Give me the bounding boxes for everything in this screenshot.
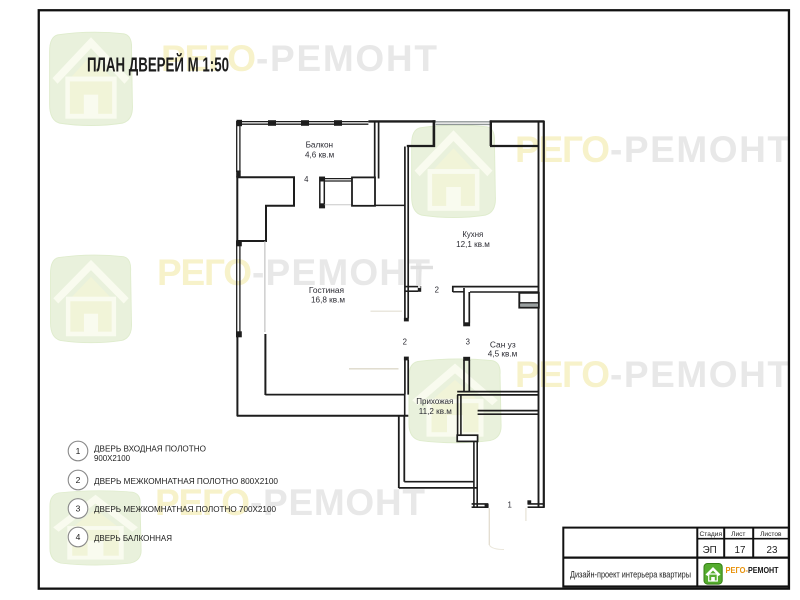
svg-text:2: 2 [76, 475, 81, 485]
svg-text:4,5 кв.м: 4,5 кв.м [488, 349, 518, 358]
svg-text:2: 2 [435, 285, 439, 294]
svg-text:ПЛАН ДВЕРЕЙ М 1:50: ПЛАН ДВЕРЕЙ М 1:50 [87, 52, 229, 76]
svg-text:Кухня: Кухня [462, 230, 483, 239]
svg-text:Прихожая: Прихожая [416, 397, 453, 406]
svg-text:2: 2 [403, 337, 407, 346]
svg-text:ДВЕРЬ МЕЖКОМНАТНАЯ ПОЛОТНО 800: ДВЕРЬ МЕЖКОМНАТНАЯ ПОЛОТНО 800Х2100 [94, 476, 278, 486]
svg-text:ДВЕРЬ ВХОДНАЯ ПОЛОТНО: ДВЕРЬ ВХОДНАЯ ПОЛОТНО [94, 443, 206, 453]
svg-text:РЕГО-РЕМОНТ: РЕГО-РЕМОНТ [726, 566, 779, 575]
svg-text:Сан уз: Сан уз [490, 339, 516, 349]
svg-text:Стадия: Стадия [700, 531, 723, 538]
svg-text:РЕГО: РЕГО [515, 129, 610, 170]
svg-text:16,8 кв.м: 16,8 кв.м [311, 295, 345, 304]
svg-text:-РЕМОНТ: -РЕМОНТ [256, 38, 437, 79]
svg-text:Гостиная: Гостиная [309, 285, 344, 295]
svg-text:4,6 кв.м: 4,6 кв.м [305, 151, 334, 160]
svg-text:3: 3 [466, 337, 470, 346]
svg-text:1: 1 [76, 446, 81, 456]
svg-text:РЕГО: РЕГО [157, 252, 252, 293]
svg-text:4: 4 [304, 175, 309, 184]
svg-text:РЕГО: РЕГО [155, 482, 250, 523]
svg-text:РЕГО: РЕГО [515, 354, 610, 395]
svg-text:3: 3 [76, 504, 81, 514]
svg-text:ДВЕРЬ БАЛКОННАЯ: ДВЕРЬ БАЛКОННАЯ [94, 533, 172, 543]
svg-text:Лист: Лист [731, 531, 745, 538]
svg-text:ДВЕРЬ МЕЖКОМНАТНАЯ ПОЛОТНО 700: ДВЕРЬ МЕЖКОМНАТНАЯ ПОЛОТНО 700Х2100 [94, 504, 276, 514]
svg-text:12,1 кв.м: 12,1 кв.м [456, 240, 490, 249]
svg-text:-РЕМОНТ: -РЕМОНТ [610, 354, 790, 395]
svg-text:900Х2100: 900Х2100 [94, 453, 130, 463]
svg-text:11,2 кв.м: 11,2 кв.м [419, 407, 452, 416]
svg-text:-РЕМОНТ: -РЕМОНТ [610, 129, 790, 170]
svg-text:ЭП: ЭП [703, 545, 717, 556]
svg-text:4: 4 [76, 532, 81, 542]
svg-text:23: 23 [767, 545, 778, 556]
svg-text:Листов: Листов [760, 531, 782, 538]
svg-text:Балкон: Балкон [306, 141, 333, 150]
svg-text:1: 1 [508, 501, 512, 510]
svg-text:Дизайн-проект интерьера кварти: Дизайн-проект интерьера квартиры [570, 570, 691, 580]
svg-text:17: 17 [735, 545, 746, 556]
